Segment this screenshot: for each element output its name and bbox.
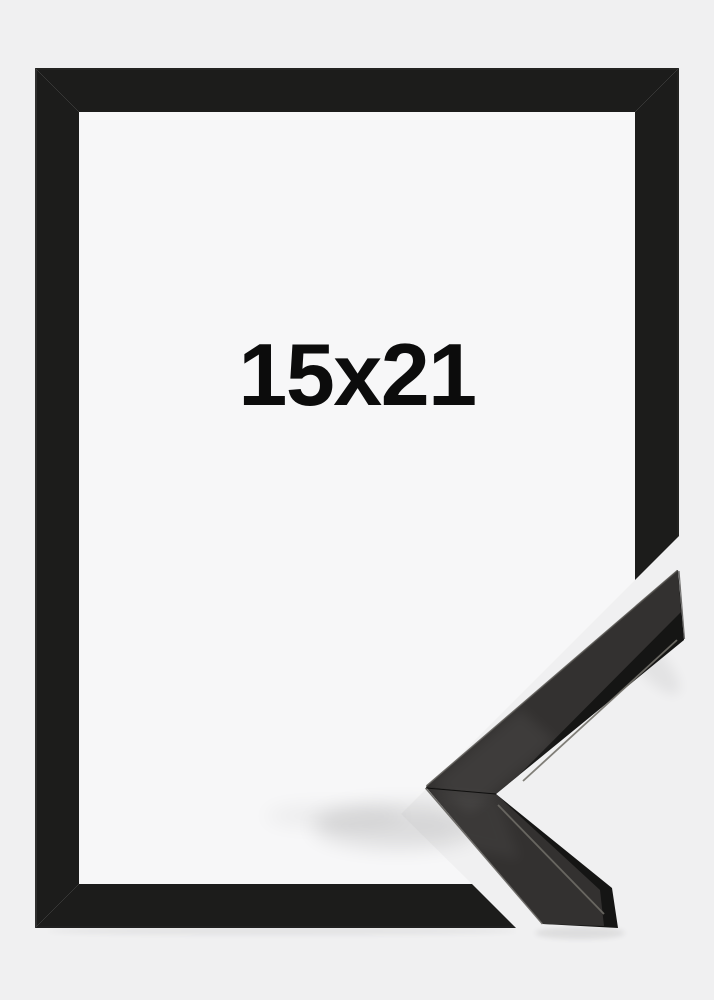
frame-top-bar <box>35 68 679 112</box>
frame-bottom-bar <box>35 884 516 928</box>
corner-sample-spread-shadow <box>265 806 405 826</box>
frame-right-bar <box>635 68 679 580</box>
frame-product-illustration: 15x21 <box>0 0 714 1000</box>
corner-sample-tip-shadow <box>535 927 625 939</box>
product-image: 15x21 <box>0 0 714 1000</box>
size-label: 15x21 <box>238 325 475 424</box>
frame-left-bar <box>35 68 79 928</box>
frame-bottom-shadow <box>47 927 517 935</box>
